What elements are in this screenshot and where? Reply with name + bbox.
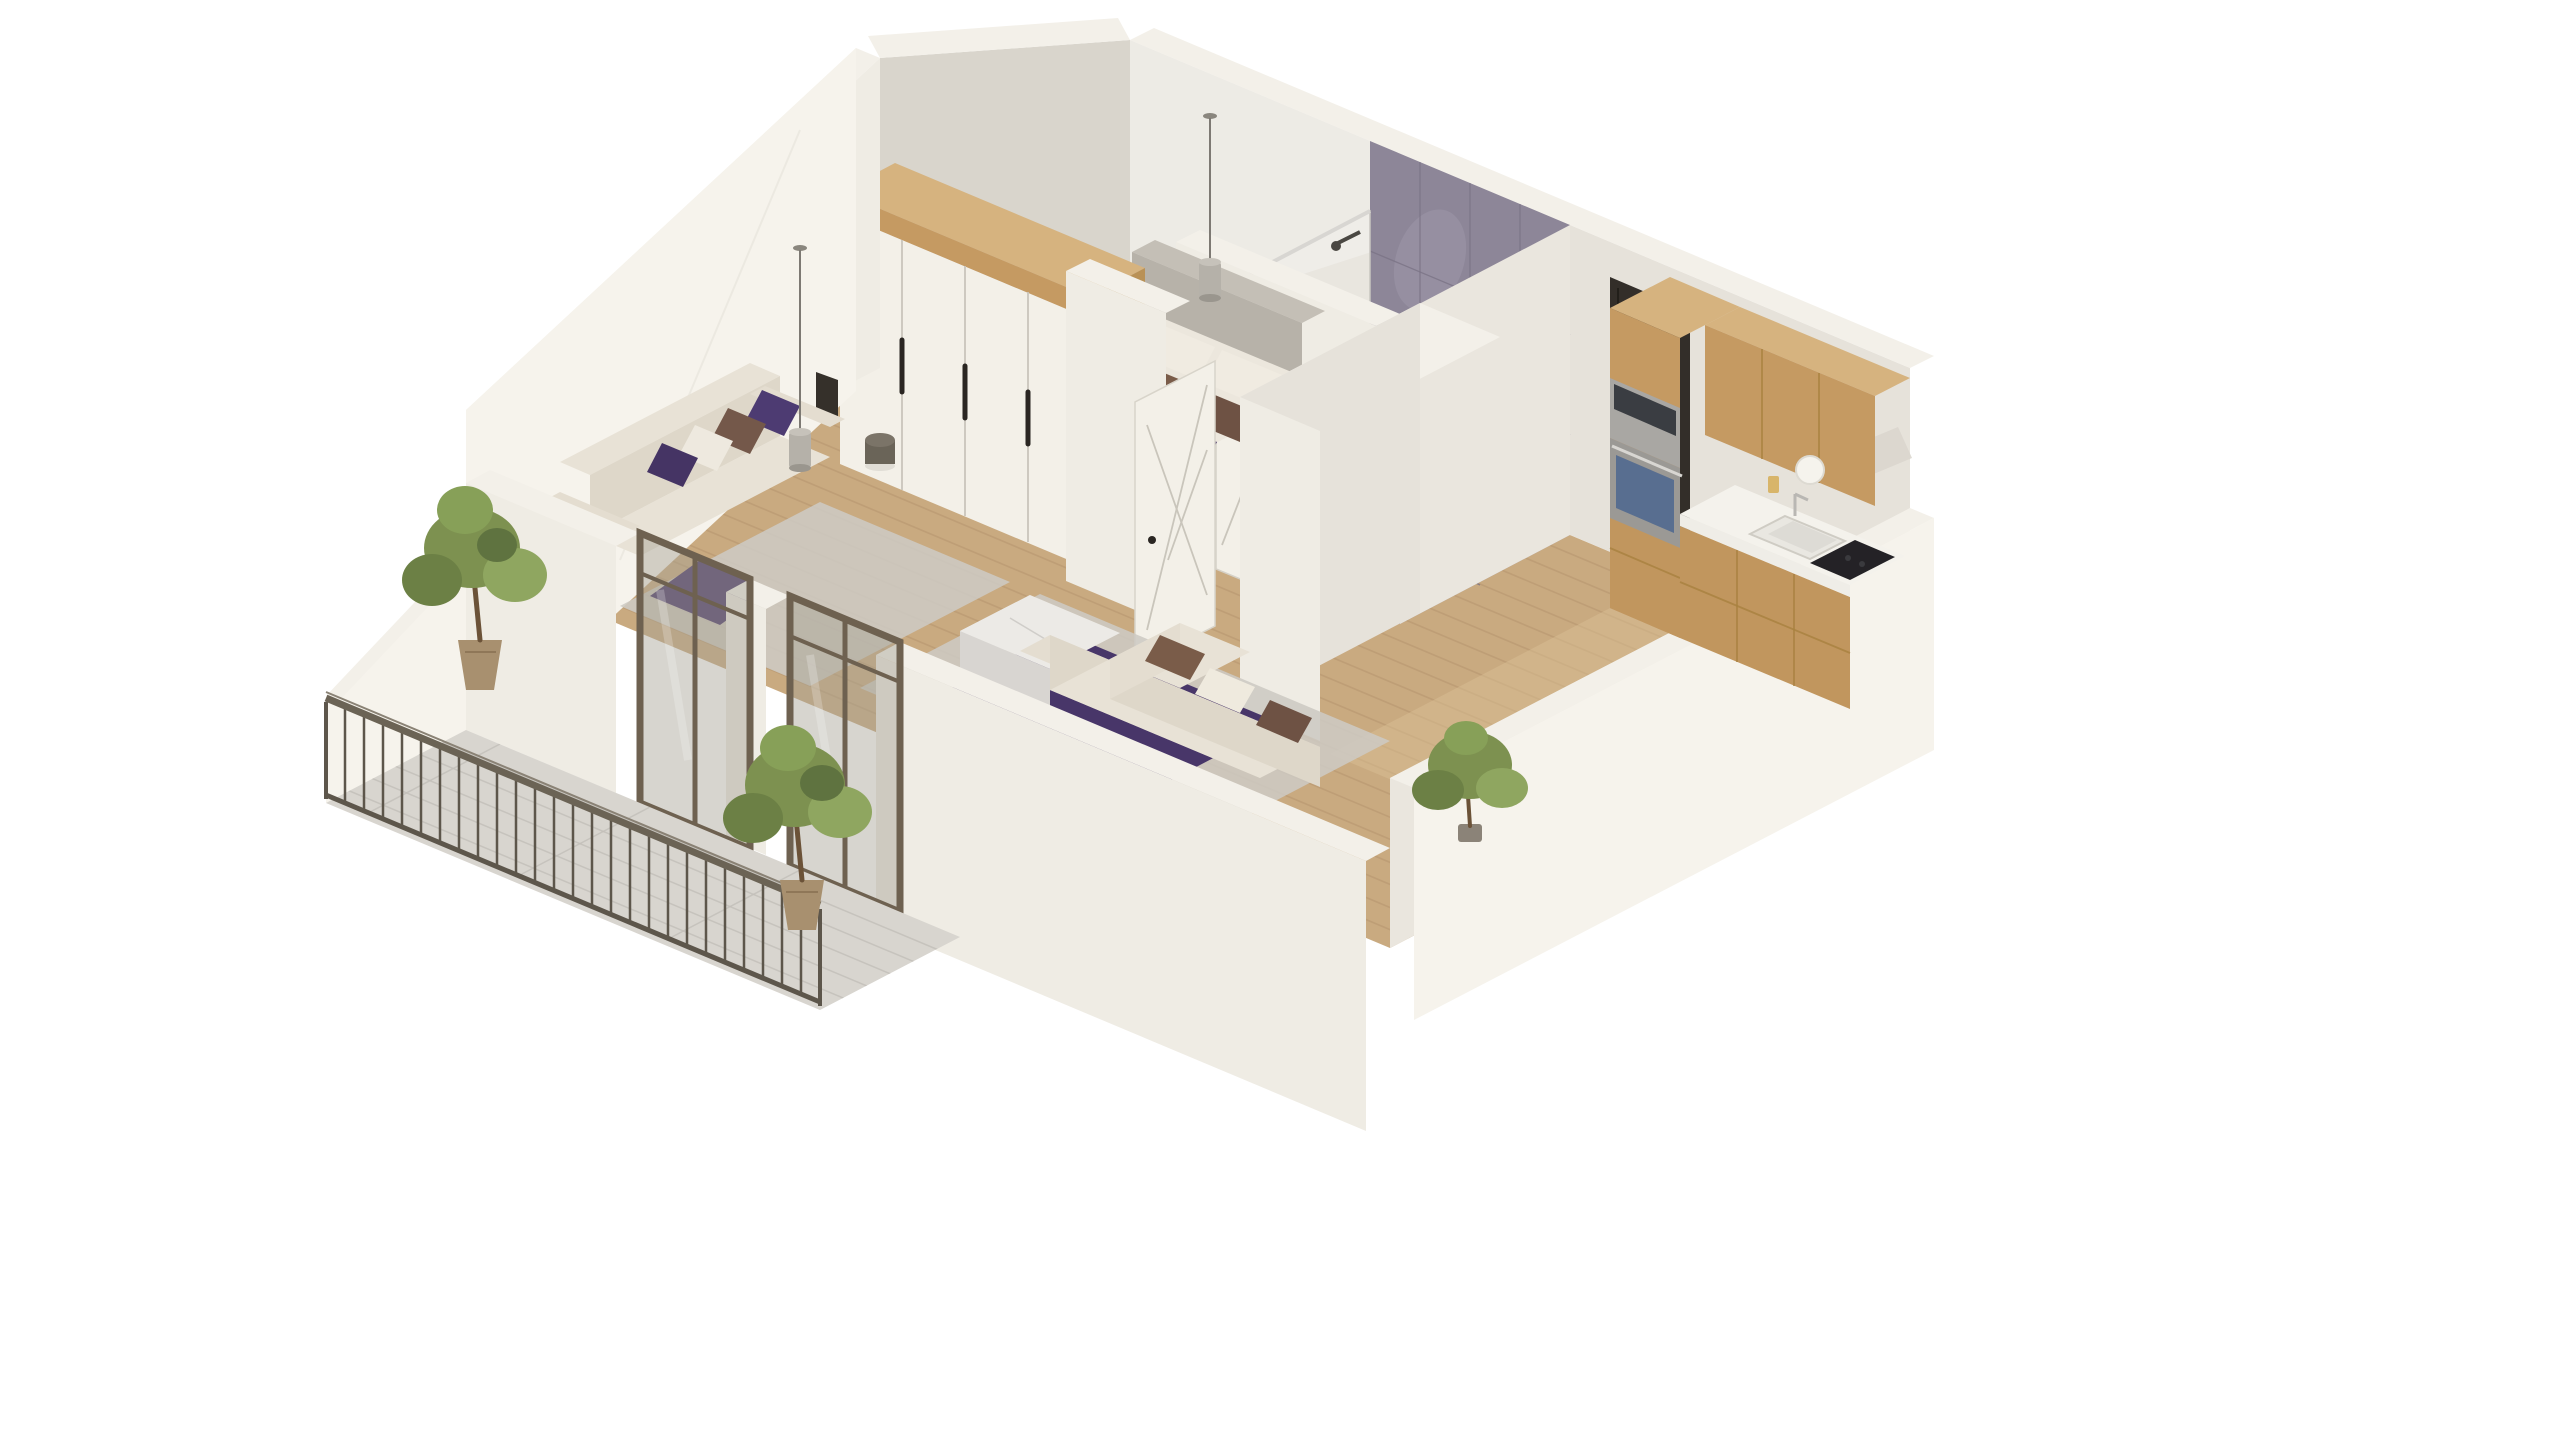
side-table [865,433,895,471]
door-handle-icon [1148,536,1156,544]
open-interior-door [1135,361,1215,667]
plate-on-wall [1796,456,1824,484]
jar [1768,476,1779,493]
shower-head-icon [1331,241,1341,251]
floorplan-render: 3D isometric architectural rendering of … [0,0,2560,1440]
isometric-apartment-scene [0,0,2560,1440]
